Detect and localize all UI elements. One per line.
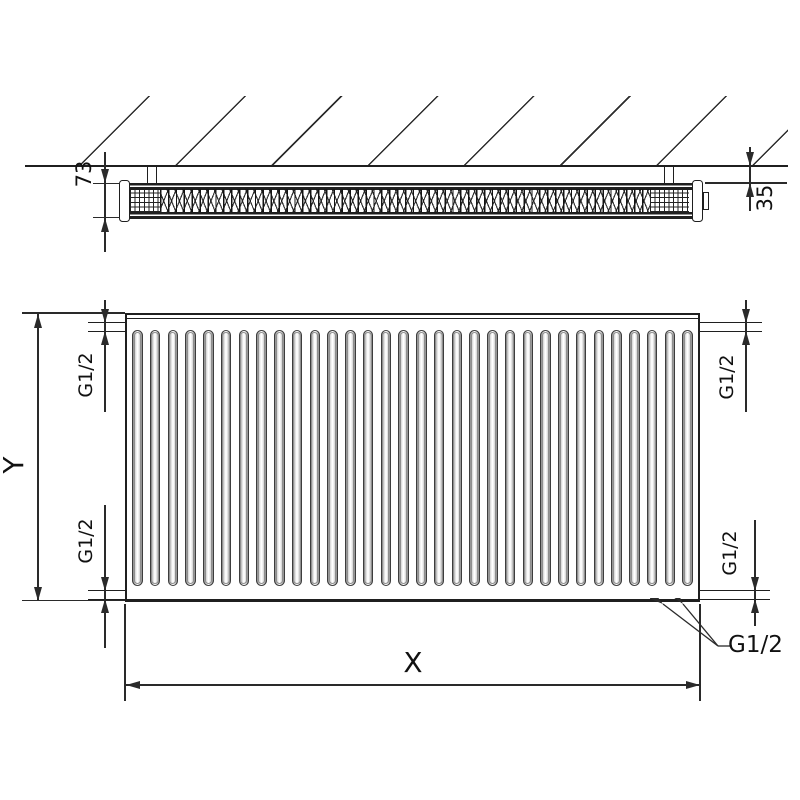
thread-arrow-a-bottom-left bbox=[101, 577, 109, 591]
thread-arrow-b-top-left bbox=[101, 331, 109, 345]
thread-label-bottom-left: G1/2 bbox=[77, 509, 99, 573]
end-cap-right bbox=[692, 180, 703, 222]
height-arrow-bottom bbox=[34, 587, 42, 601]
heating-channel bbox=[327, 330, 338, 586]
heating-channel bbox=[132, 330, 143, 586]
height-dimension-label: Y bbox=[0, 444, 28, 486]
thread-arrow-a-top-right bbox=[742, 309, 750, 323]
heating-channel bbox=[203, 330, 214, 586]
heating-channel bbox=[611, 330, 622, 586]
heating-channel bbox=[576, 330, 587, 586]
depth-dimension-label: 73 bbox=[74, 153, 96, 195]
heating-channel bbox=[647, 330, 658, 586]
heating-channel bbox=[540, 330, 551, 586]
thread-arrow-a-top-left bbox=[101, 309, 109, 323]
heating-channel bbox=[452, 330, 463, 586]
thread-arrow-b-bottom-right bbox=[751, 599, 759, 613]
thread-label-bottom-leader: G1/2 bbox=[728, 634, 788, 658]
heating-channel bbox=[381, 330, 392, 586]
heating-channel bbox=[345, 330, 356, 586]
depth-extension-top bbox=[93, 183, 120, 184]
leader-arrows bbox=[650, 598, 732, 652]
thread-label-top-right: G1/2 bbox=[718, 345, 740, 409]
thread-label-top-left: G1/2 bbox=[77, 343, 99, 407]
thread-arrow-a-bottom-right bbox=[751, 577, 759, 591]
convector-fins bbox=[160, 189, 651, 213]
height-dimension-line bbox=[37, 313, 38, 601]
width-arrow-left bbox=[126, 681, 140, 689]
heating-channel bbox=[150, 330, 161, 586]
heating-channel bbox=[363, 330, 374, 586]
heating-channel bbox=[505, 330, 516, 586]
side-connection-stub bbox=[703, 192, 709, 210]
thread-arrow-b-top-right bbox=[742, 331, 750, 345]
depth-dimension-line bbox=[104, 152, 105, 252]
heating-channel bbox=[594, 330, 605, 586]
heating-channel bbox=[310, 330, 321, 586]
heating-channel bbox=[682, 330, 693, 586]
heating-channel bbox=[416, 330, 427, 586]
wall-gap-arrow-top bbox=[746, 152, 754, 166]
wall-gap-dimension-label: 35 bbox=[755, 177, 777, 219]
depth-arrow-top bbox=[101, 169, 109, 183]
thread-label-bottom-right: G1/2 bbox=[721, 521, 743, 585]
heating-channel bbox=[558, 330, 569, 586]
heating-channel bbox=[398, 330, 409, 586]
heating-channel bbox=[274, 330, 285, 586]
top-band-inner-line bbox=[127, 318, 698, 319]
heating-channel bbox=[239, 330, 250, 586]
heating-channel bbox=[469, 330, 480, 586]
heating-channel bbox=[629, 330, 640, 586]
heating-channel bbox=[292, 330, 303, 586]
heating-channel bbox=[434, 330, 445, 586]
wall-hatching bbox=[52, 96, 788, 167]
radiator-front-plate bbox=[129, 212, 693, 219]
height-arrow-top bbox=[34, 314, 42, 328]
heating-channel bbox=[168, 330, 179, 586]
heating-channel bbox=[221, 330, 232, 586]
end-cap-left bbox=[119, 180, 130, 222]
radiator-technical-drawing: 73 35 Y X G1/2 G1/2 G1/2 G1/2 bbox=[0, 0, 800, 800]
width-dimension-label: X bbox=[392, 649, 434, 677]
heating-channel bbox=[185, 330, 196, 586]
mounting-bracket-left bbox=[147, 167, 157, 183]
connection-stub-top-right bbox=[700, 322, 762, 332]
header-grid-left bbox=[130, 190, 161, 213]
depth-arrow-bottom bbox=[101, 218, 109, 232]
mounting-bracket-right bbox=[664, 167, 674, 183]
heating-channel bbox=[523, 330, 534, 586]
width-arrow-right bbox=[686, 681, 700, 689]
tube-field bbox=[132, 330, 693, 586]
thread-arrow-b-bottom-left bbox=[101, 599, 109, 613]
width-dimension-line bbox=[125, 684, 700, 685]
heating-channel bbox=[665, 330, 676, 586]
heating-channel bbox=[256, 330, 267, 586]
header-grid-right bbox=[650, 190, 689, 213]
heating-channel bbox=[487, 330, 498, 586]
